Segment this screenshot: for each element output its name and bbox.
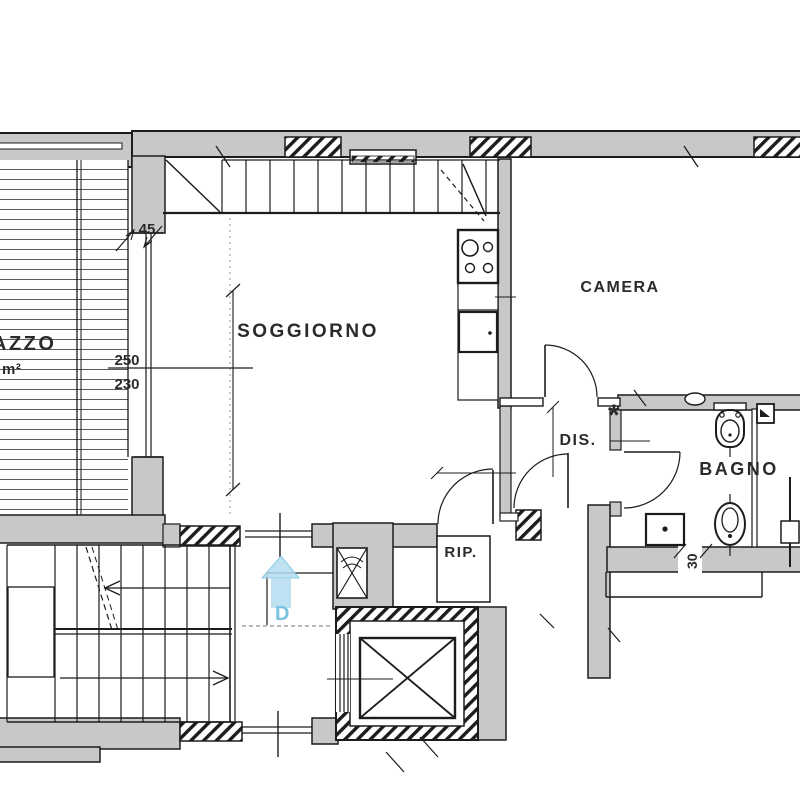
lintel-top-1 [285,137,341,157]
label-asterisk: * [608,399,620,432]
wall-basin-icon [685,393,705,405]
stove-icon [458,230,498,283]
floor-plan-drawing: D SOGGIORNO CAMERA DIS. BAGNO RIP. AZZO … [0,0,800,800]
wall-bagno-bottom [607,547,800,572]
bidet-bowl-icon [722,508,738,532]
lintel-top-3 [754,137,800,157]
terrace-window [134,233,163,457]
window-leaf-left [166,160,220,212]
stair-direction-arrows [60,581,230,685]
wall-top [132,131,800,157]
window-leaf-right [463,164,486,216]
burner-large-icon [462,240,478,256]
wall-dis-right-lower [610,502,621,516]
shower-drain-icon [662,526,667,531]
burner-small-icon [484,243,493,252]
lintel-entry-door [180,526,240,546]
entrance-door-letter: D [275,603,289,625]
toilet-tank-icon [714,403,746,410]
label-dis: DIS. [559,432,596,449]
label-soggiorno: SOGGIORNO [237,321,379,342]
wall-bottom-pier [312,718,338,744]
label-bagno: BAGNO [699,459,779,479]
burner-small-icon [484,264,493,273]
bathroom-fixtures [646,393,799,567]
door-soggiorno-arc [438,469,493,524]
wall-elevator-right [478,607,506,740]
entrance-arrow-icon [262,556,299,578]
wall-top-left-core [0,143,122,149]
window-sill-top [350,150,416,164]
wall-left-lower [132,457,163,519]
dim-45: 45 [139,221,156,238]
room-below-bagno-outline [606,572,762,597]
staircase [7,545,235,722]
soggiorno-window-band [163,160,500,221]
toilet-bowl-icon [721,420,739,442]
door-dis-arc [514,454,568,508]
elevator [327,607,478,740]
wall-entry-left [163,524,180,547]
sink-tap-icon [488,331,492,335]
lintel-landing-door [180,722,242,741]
wall-dis-left [500,406,511,516]
radiator-icon [781,521,799,543]
wall-soggiorno-camera [498,159,511,408]
label-rip: RIP. [444,544,477,561]
dim-250: 250 [114,352,139,369]
tick-elevator-top [540,614,554,628]
label-terrazzo-area: m² [2,361,21,378]
door-bagno-arc [624,452,680,508]
floor-plan: D SOGGIORNO CAMERA DIS. BAGNO RIP. AZZO … [0,0,800,800]
dim-230: 230 [114,376,139,393]
pillar-dis [516,510,541,540]
wall-dis-bottom-stub [500,513,518,521]
wall-camera-dis-left [500,398,543,406]
lintel-top-2 [470,137,531,157]
label-camera: CAMERA [580,279,659,296]
wall-terrace-bottom [0,515,165,543]
stairwell-void [8,587,54,677]
dim-30: 30 [684,553,700,569]
wall-bottom-left-step [0,747,100,762]
door-camera-arc [545,345,597,397]
burner-small-icon [466,264,475,273]
duct-shaft [337,548,367,598]
label-terrazzo-partial: AZZO [0,333,56,355]
tick-bottom-1 [386,752,404,772]
